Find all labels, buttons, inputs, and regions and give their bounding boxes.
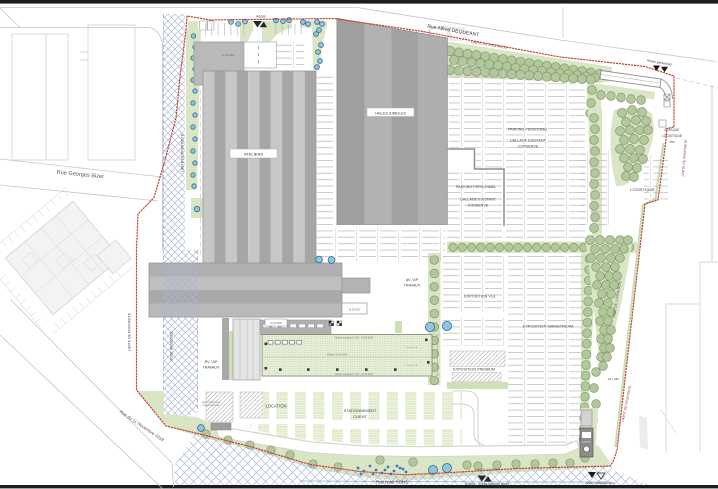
svg-text:PARKING PERSONNEL: PARKING PERSONNEL: [508, 128, 548, 132]
svg-text:Niveau location 0.7ml - +0.3: Niveau location 0.7ml - +0.30 NGF: [335, 336, 374, 339]
svg-text:HALLES JUMELLES: HALLES JUMELLES: [375, 111, 406, 115]
svg-text:Porte 2 / B: Porte 2 / B: [407, 364, 418, 367]
svg-text:+0.30 NGF: +0.30 NGF: [581, 442, 591, 444]
svg-text:Accès: Accès: [256, 15, 266, 19]
svg-text:LOCATION: LOCATION: [265, 404, 286, 409]
svg-text:STATIONNEMENT: STATIONNEMENT: [344, 408, 377, 413]
svg-text:LOGISTIQUE: LOGISTIQUE: [662, 134, 683, 138]
svg-text:AV / AP: AV / AP: [406, 278, 419, 282]
svg-text:+9.30 NGF: +9.30 NGF: [270, 322, 283, 325]
svg-text:Entrée : Sortie parking client: Entrée : Sortie parking client: [465, 482, 509, 486]
svg-text:EXPOSITION PREMIUM: EXPOSITION PREMIUM: [453, 368, 495, 372]
svg-text:LOGISTIQUE: LOGISTIQUE: [630, 187, 655, 192]
svg-text:+9.30 NGF: +9.30 NGF: [348, 309, 361, 312]
svg-text:KIOSQUE: KIOSQUE: [664, 128, 680, 132]
svg-text:Porte 2 / A: Porte 2 / A: [407, 346, 418, 349]
svg-text:DALLAGE EXISTANT: DALLAGE EXISTANT: [460, 198, 497, 202]
svg-text:EXPOSITION MAINSTREAM: EXPOSITION MAINSTREAM: [523, 324, 574, 329]
svg-text:PARKING PERSONNEL: PARKING PERSONNEL: [456, 185, 496, 189]
svg-text:RV / AP: RV / AP: [205, 360, 218, 364]
svg-text:Niveau location 0.7ml - +0.3: Niveau location 0.7ml - +0.30 NGF: [335, 373, 374, 376]
svg-text:CONSERVE: CONSERVE: [468, 204, 489, 208]
svg-text:VAN TS MARQUAGE: VAN TS MARQUAGE: [202, 401, 221, 404]
svg-text:CLIENT: CLIENT: [353, 414, 367, 419]
svg-text:TRAVAUX: TRAVAUX: [404, 284, 421, 288]
svg-text:TRAVAUX: TRAVAUX: [203, 366, 220, 370]
svg-text:24 / 24h: 24 / 24h: [608, 377, 619, 381]
svg-text:ZONE RESERVEE: ZONE RESERVEE: [170, 330, 174, 360]
svg-text:DALLAGE EXISTANT: DALLAGE EXISTANT: [510, 139, 547, 143]
svg-text:CONSERVE: CONSERVE: [518, 145, 539, 149]
svg-text:Rue Noel PONS: Rue Noel PONS: [376, 480, 408, 485]
svg-text:Village +0.30 NGF: Village +0.30 NGF: [327, 353, 348, 356]
svg-text:ATELIERS: ATELIERS: [244, 152, 263, 157]
svg-text:Accès logistique crée: Accès logistique crée: [585, 481, 615, 485]
svg-text:LIMITE DE PROPRIETE: LIMITE DE PROPRIETE: [128, 312, 132, 351]
svg-text:LIMITE DE PROPRIETE: LIMITE DE PROPRIETE: [181, 133, 185, 172]
svg-text:+1.20 NGF: +1.20 NGF: [222, 53, 235, 57]
svg-text:REPRISE ENROBE: REPRISE ENROBE: [203, 405, 221, 407]
svg-text:4m²: 4m²: [669, 140, 676, 144]
svg-text:EXPOSITION VUL: EXPOSITION VUL: [464, 295, 496, 299]
